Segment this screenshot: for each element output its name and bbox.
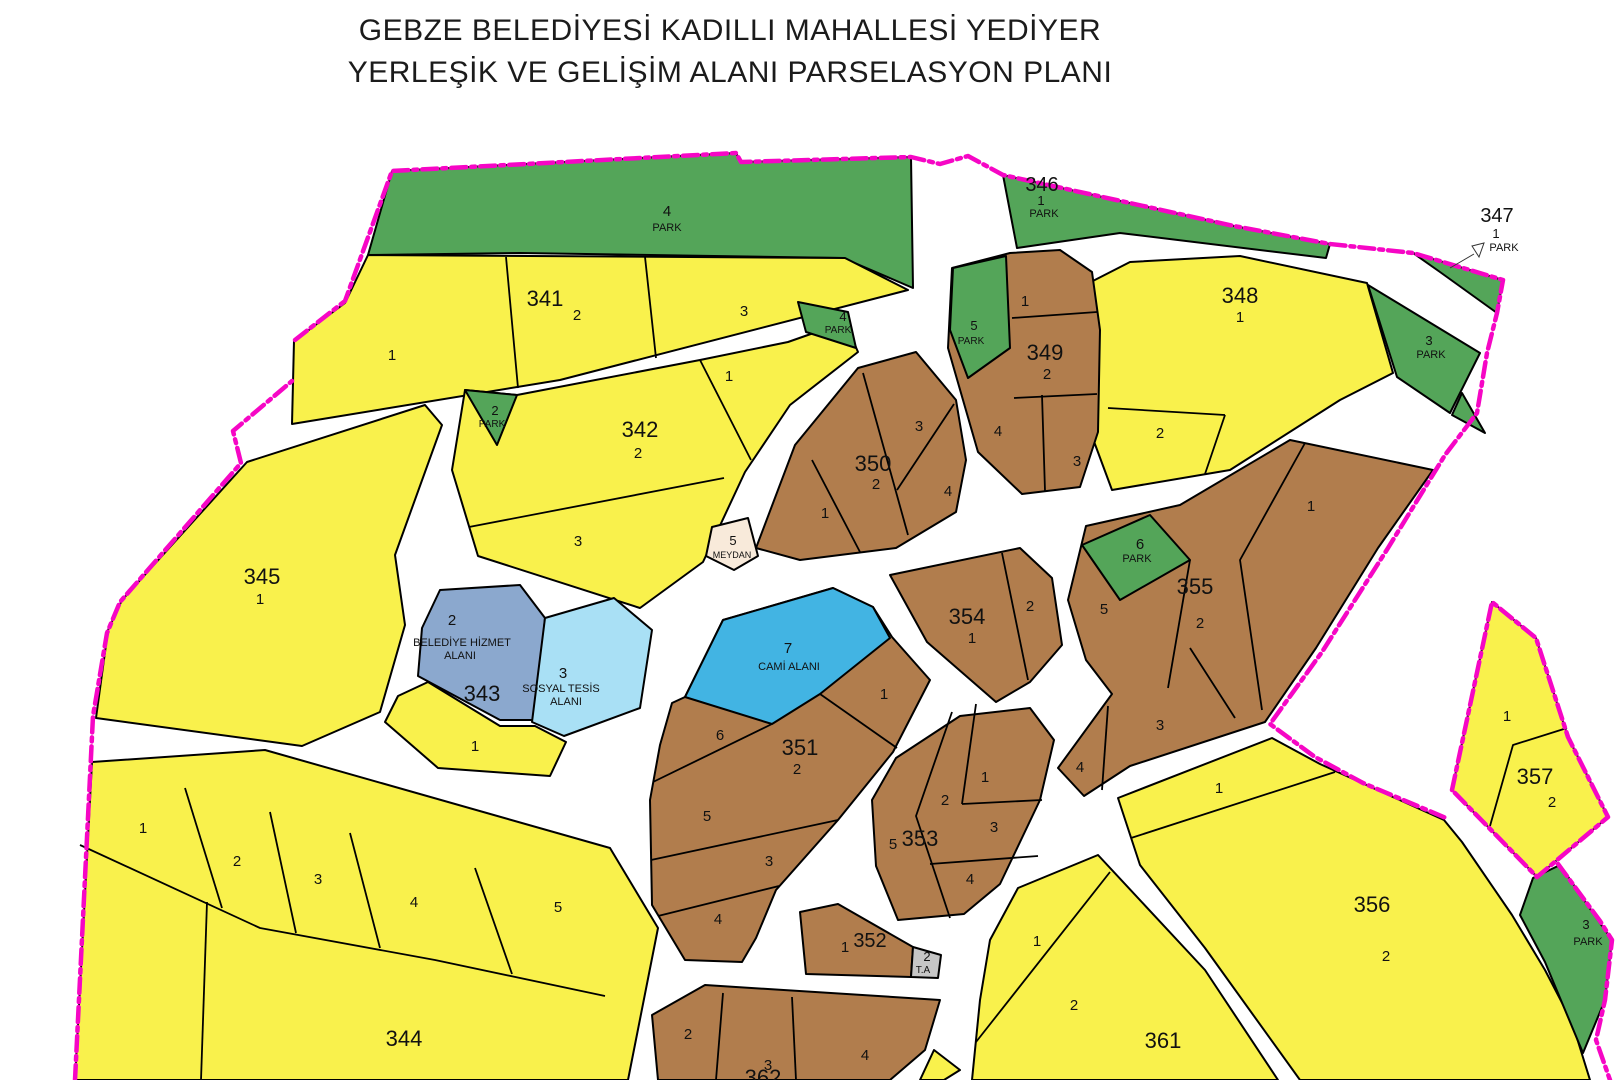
map-label: PARK [652,222,682,234]
map-label: 1 [1503,708,1511,725]
map-label: 1 [471,738,479,755]
map-label: 2 [1043,366,1051,383]
plan-title-line2: YERLEŞİK VE GELİŞİM ALANI PARSELASYON PL… [0,52,1460,94]
map-label: 343 [464,681,501,706]
map-label: 2 [1026,598,1034,615]
map-label: 1 [841,939,849,956]
map-label: 4 [1076,759,1084,776]
map-label: 2 [573,307,581,324]
map-label: 1 [725,368,733,385]
map-label: 1 [981,769,989,786]
plan-title: GEBZE BELEDİYESİ KADILLI MAHALLESİ YEDİY… [0,10,1460,94]
map-label: BELEDİYE HİZMET [413,636,511,649]
map-label: 4 [944,483,952,500]
map-label: 1 [1215,780,1223,797]
map-label: 4 [966,871,974,888]
map-label: 2 [1156,425,1164,442]
map-label: 356 [1354,892,1391,917]
map-label: 361 [1145,1028,1182,1053]
map-label: ALANI [444,650,476,662]
map-label: 1 [388,347,396,364]
map-label: 2 [491,403,498,418]
map-label: 3 [915,418,923,435]
map-label: PARK [958,336,985,347]
map-label: 5 [703,808,711,825]
map-label: SOSYAL TESİS [522,682,599,695]
map-label: PARK [479,419,506,430]
map-label: PARK [1573,936,1603,948]
map-label: 5 [1100,601,1108,618]
map-label: 2 [941,792,949,809]
map-label: 347 [1480,205,1513,227]
map-label: 1 [1037,193,1044,208]
map-label: 4 [714,911,722,928]
block-355 [1058,440,1433,796]
map-label: 2 [1196,615,1204,632]
map-label: 342 [622,417,659,442]
map-label: CAMİ ALANI [758,660,820,673]
map-label: 1 [256,591,264,608]
map-label: 344 [386,1026,423,1051]
map-label: 2 [1548,794,1556,811]
map-label: 5 [970,318,977,333]
map-label: 3 [1156,717,1164,734]
map-label: 351 [782,735,819,760]
map-label: 2 [923,949,930,964]
map-label: 355 [1177,574,1214,599]
map-label: 353 [902,826,939,851]
map-label: 3 [574,533,582,550]
map-label: 4 [861,1047,869,1064]
map-label: 2 [872,476,880,493]
map-label: 1 [1236,309,1244,326]
map-label: 362 [745,1065,782,1080]
map-label: 3 [1073,453,1081,470]
map-label: PARK [1416,349,1446,361]
map-label: 2 [1070,997,1078,1014]
map-label: 1 [821,505,829,522]
map-label: 352 [853,930,886,952]
parcelation-plan-page: GEBZE BELEDİYESİ KADILLI MAHALLESİ YEDİY… [0,0,1620,1080]
map-label: 3 [314,871,322,888]
map-label: PARK [825,325,852,336]
map-label: 6 [716,727,724,744]
map-label: 2 [1382,948,1390,965]
parcelation-map: 4PARK3461PARK3471PARK341213348123PARK4PA… [0,0,1620,1080]
map-label: 3 [765,853,773,870]
map-label: 2 [233,853,241,870]
map-label: 4 [663,203,671,220]
map-label: 1 [968,630,976,647]
map-label: PARK [1122,553,1152,565]
block-344 [75,750,658,1080]
park-347-arrow-icon [1472,243,1484,257]
map-label: 1 [1492,226,1499,241]
map-label: 345 [244,564,281,589]
map-label: 4 [410,894,418,911]
map-label: 3 [990,819,998,836]
map-label: 1 [1021,293,1029,310]
map-label: 348 [1222,283,1259,308]
map-label: 1 [880,686,888,703]
map-label: 2 [793,761,801,778]
map-label: 1 [139,820,147,837]
map-label: 6 [1136,536,1144,553]
map-label: T.A [916,965,931,976]
map-label: ALANI [550,696,582,708]
map-label: 1 [1307,498,1315,515]
map-label: PARK [1029,208,1059,220]
map-label: 5 [729,533,736,548]
map-label: 3 [1425,333,1432,348]
map-label: 3 [1582,917,1589,932]
map-label: 2 [684,1026,692,1043]
map-label: 4 [994,423,1002,440]
map-label: 4 [839,309,846,324]
map-label: 357 [1517,764,1554,789]
park-347-leader-line [1450,254,1474,268]
map-label: 5 [889,836,897,853]
map-label: 3 [740,303,748,320]
map-label: MEYDAN [713,550,752,560]
map-label: 7 [784,640,792,657]
map-label: 1 [1033,933,1041,950]
plan-title-line1: GEBZE BELEDİYESİ KADILLI MAHALLESİ YEDİY… [0,10,1460,52]
map-label: 349 [1027,340,1064,365]
map-label: 5 [554,899,562,916]
wedge-south [920,1050,960,1080]
map-label: 2 [634,445,642,462]
block-343-sosyal [532,598,652,736]
map-label: 2 [448,612,456,629]
map-label: 3 [559,665,567,682]
map-label: 350 [855,451,892,476]
map-label: 341 [527,286,564,311]
map-label: 354 [949,604,986,629]
park-347-sliver [1413,253,1503,313]
map-label: PARK [1489,242,1519,254]
